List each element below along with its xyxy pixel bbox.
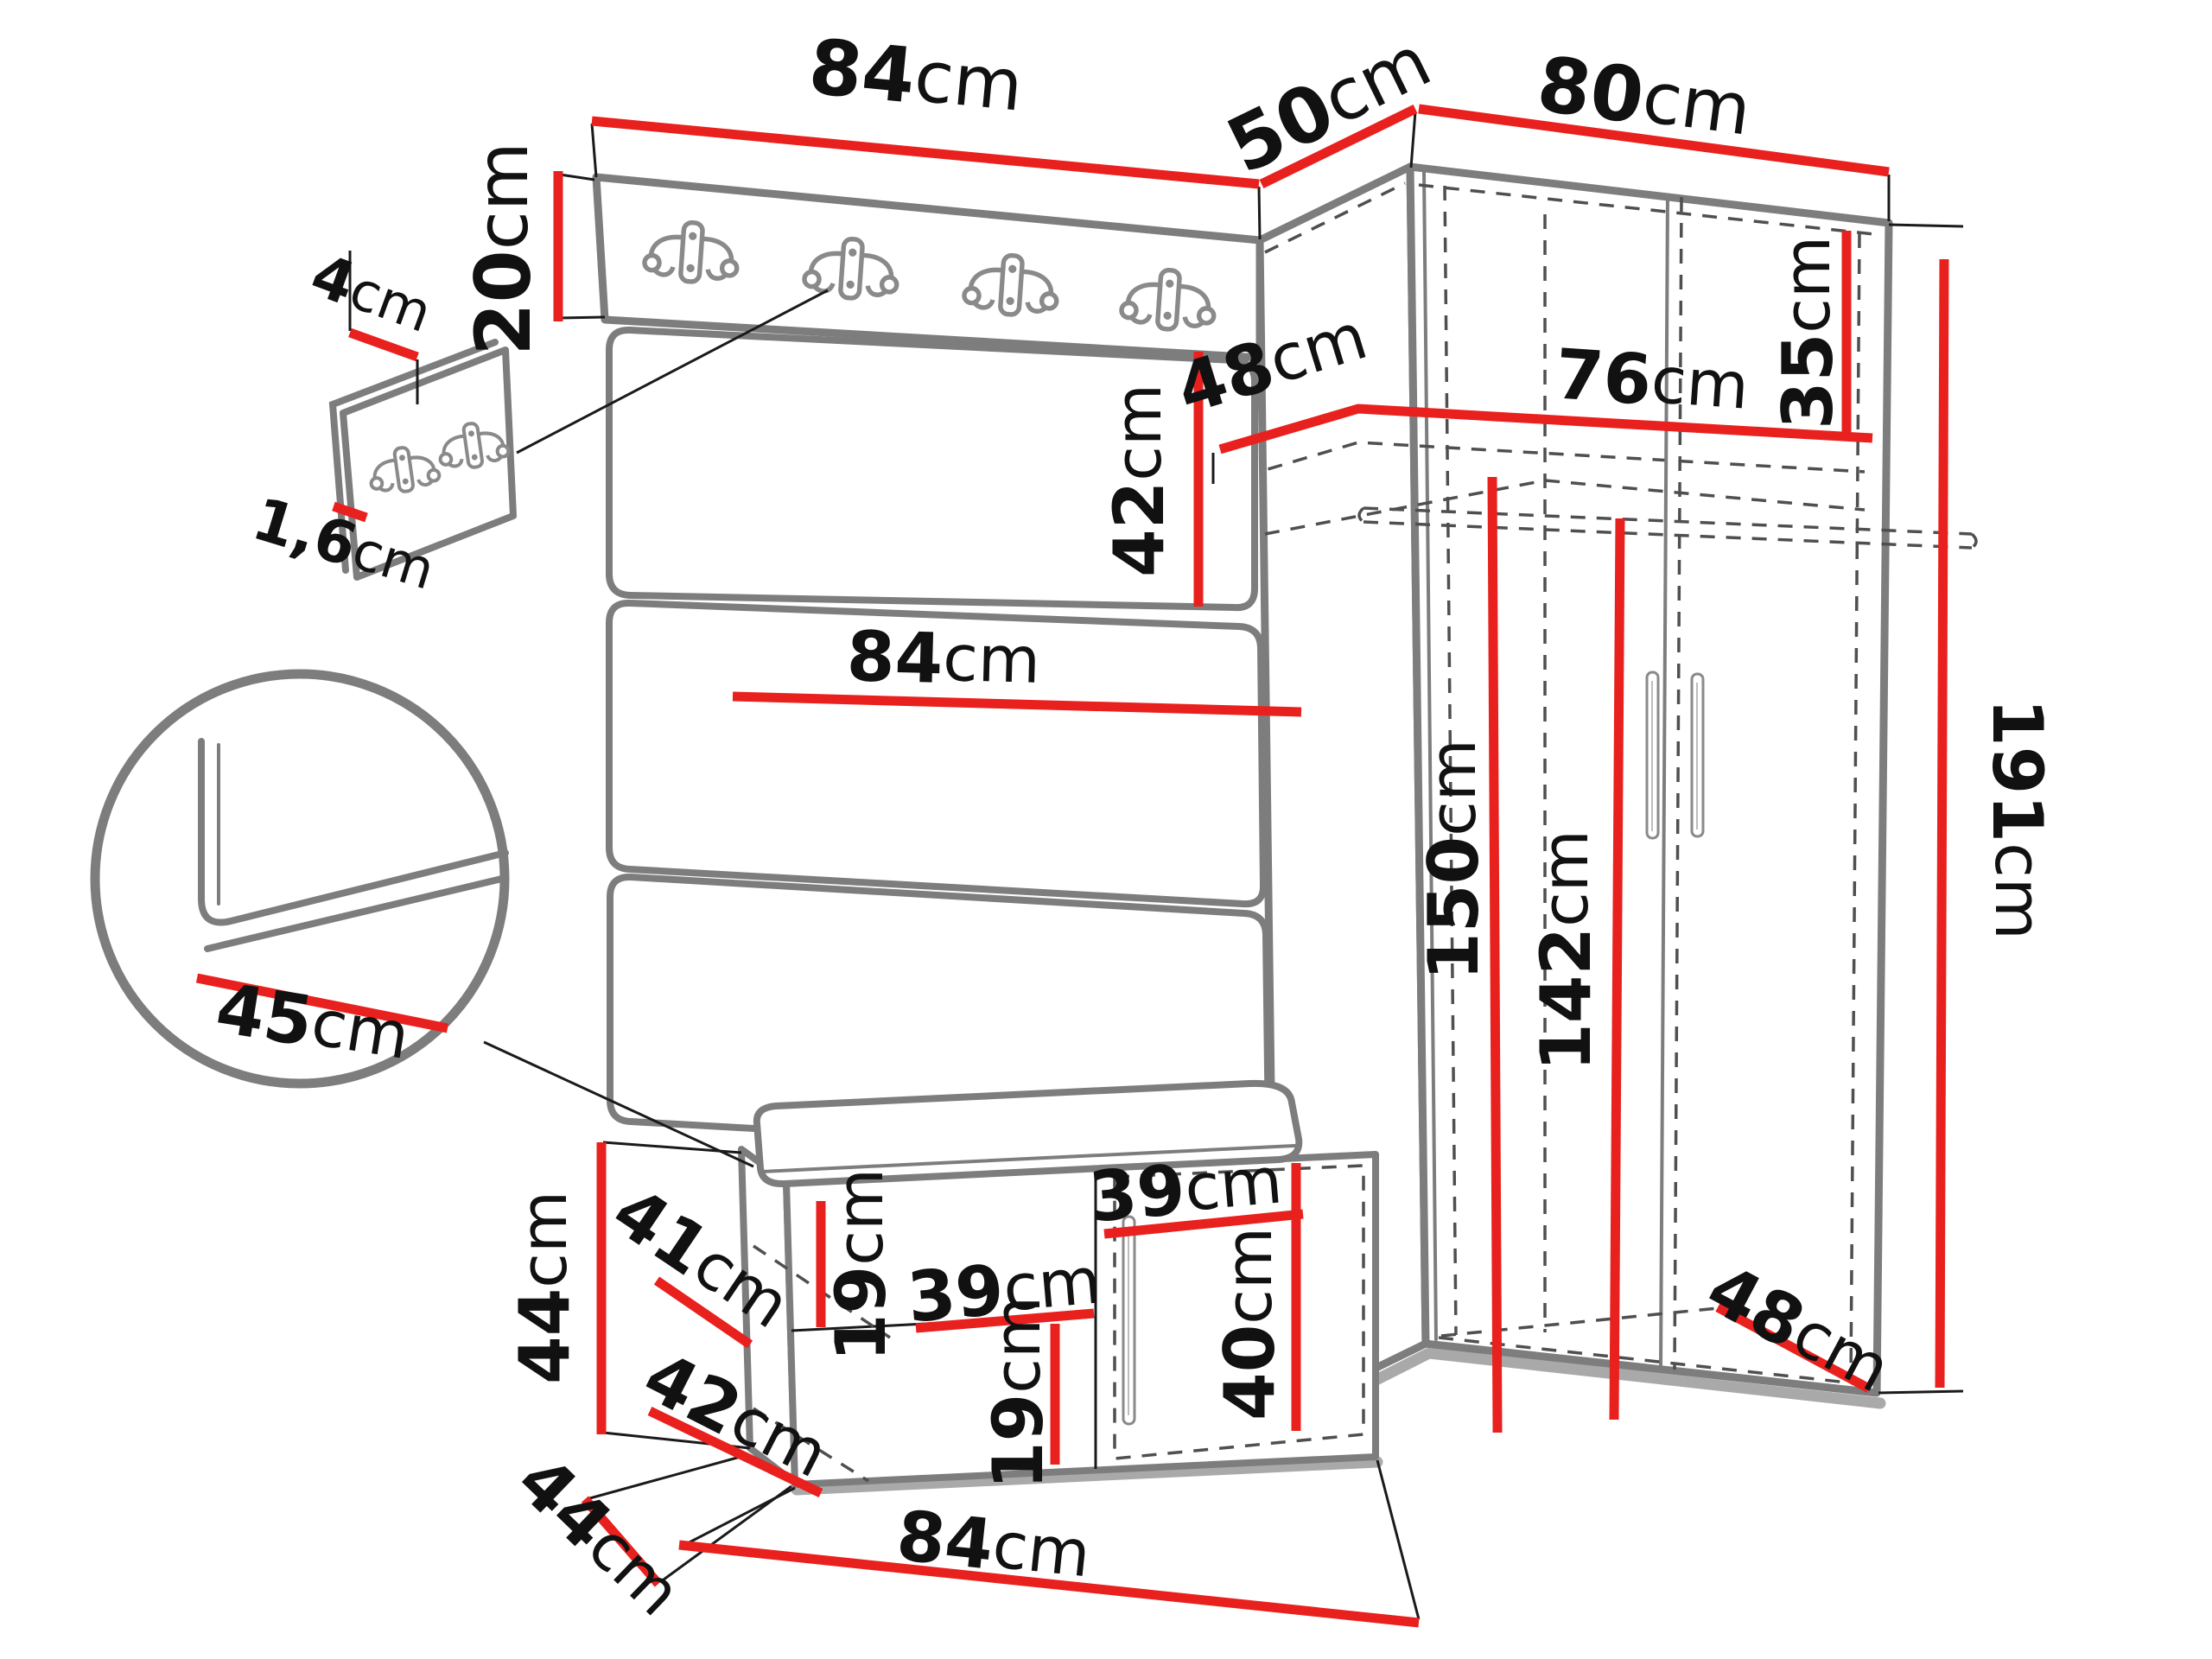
dim-label-bench-gap-lower: 19cm	[978, 1296, 1058, 1490]
right-door-handle-icon	[1692, 674, 1703, 836]
dim-label-bench-gap-upper: 19cm	[821, 1168, 901, 1362]
dim-label-mini-panel-width: 4cm	[302, 241, 441, 347]
dim-label-top-shelf-width: 76cm	[1553, 334, 1751, 427]
left-door-handle-icon	[1647, 672, 1658, 838]
dim-label-wardrobe-height: 191cm	[1978, 698, 2058, 940]
dim-label-bench-door-height: 40cm	[1210, 1227, 1290, 1421]
bench-door-handle-icon	[1123, 1217, 1135, 1424]
dim-label-panel-width: 84cm	[846, 616, 1041, 702]
dim-label-bench-height: 44cm	[505, 1191, 585, 1384]
dim-label-wardrobe-width: 80cm	[1533, 39, 1757, 155]
dim-line-interior-height-right	[1614, 518, 1620, 1420]
dim-label-hook-board-height: 20cm	[459, 142, 548, 355]
dim-label-bench-width: 84cm	[893, 1495, 1095, 1595]
furniture-dimension-diagram: 84cm 50cm 80cm 20cm 4cm 1,6cm 42cm 84cm …	[0, 0, 2212, 1659]
diagram-canvas: 84cm 50cm 80cm 20cm 4cm 1,6cm 42cm 84cm …	[0, 0, 2212, 1659]
dim-label-interior-height-left: 150cm	[1414, 739, 1494, 981]
dim-line-hook-board-width	[592, 121, 1259, 184]
dim-label-hook-board-width: 84cm	[805, 22, 1027, 130]
dim-line-wardrobe-height	[1940, 259, 1944, 1388]
dim-label-cushion-height: 42cm	[1099, 384, 1179, 577]
dim-label-interior-height-right: 142cm	[1526, 829, 1606, 1071]
dim-label-bench-depth: 44cm	[502, 1440, 697, 1633]
dim-label-top-shelf-height: 35cm	[1768, 236, 1848, 429]
